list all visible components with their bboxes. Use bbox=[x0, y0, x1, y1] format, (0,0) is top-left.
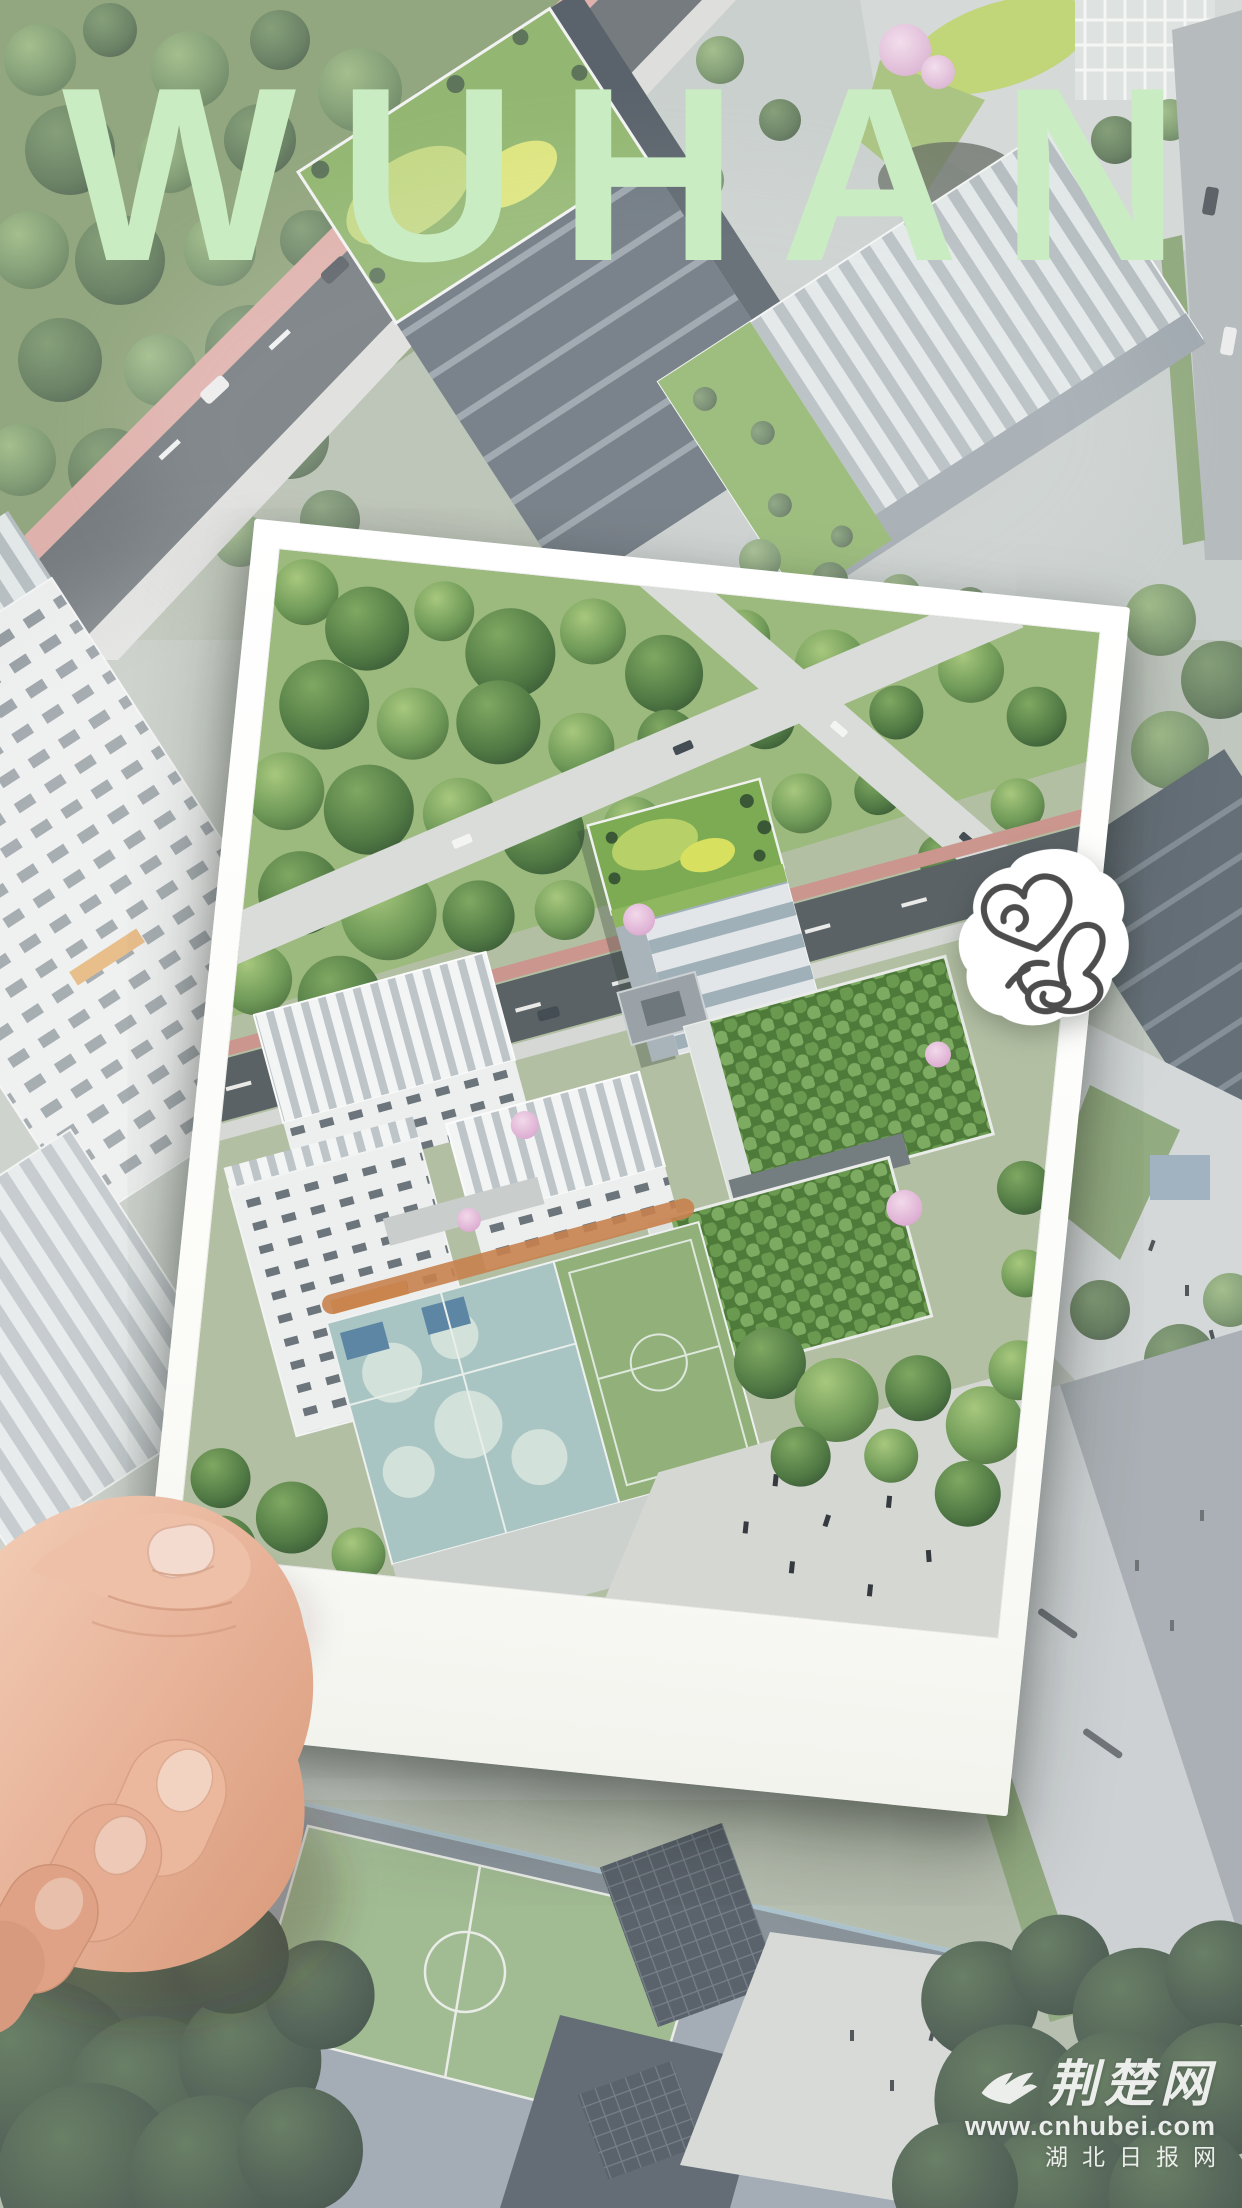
title-letter: H bbox=[559, 50, 738, 298]
doodle-sticker bbox=[952, 840, 1136, 1036]
watermark: 荆楚网 www.cnhubei.com 湖北日报网 bbox=[965, 2059, 1216, 2170]
watermark-site-label: 湖北日报网 bbox=[1045, 2147, 1230, 2170]
watermark-site-name: 荆楚网 bbox=[1048, 2059, 1216, 2109]
poster: WUHAN bbox=[0, 0, 1242, 2208]
title-letter: A bbox=[780, 50, 959, 298]
title-letter: N bbox=[1001, 50, 1180, 298]
holding-hand bbox=[0, 1420, 680, 2208]
title-letter: U bbox=[338, 50, 517, 298]
watermark-logo-row: 荆楚网 bbox=[980, 2059, 1216, 2109]
bird-logo-icon bbox=[980, 2063, 1038, 2109]
poster-title: WUHAN bbox=[62, 50, 1180, 298]
watermark-url: www.cnhubei.com bbox=[965, 2113, 1216, 2140]
title-letter: W bbox=[62, 50, 296, 298]
